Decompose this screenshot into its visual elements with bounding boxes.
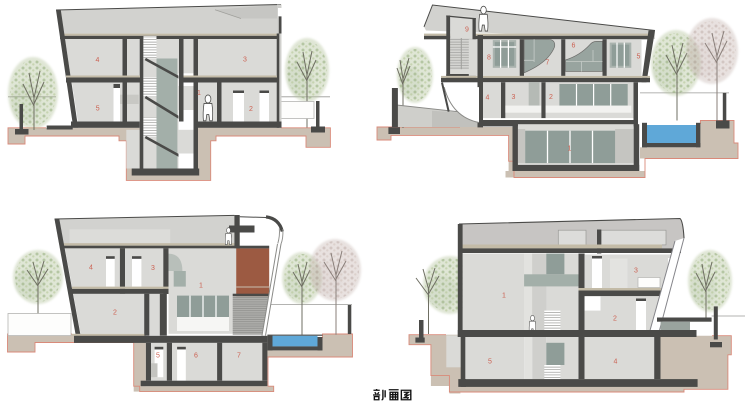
svg-text:1: 1 [199, 283, 203, 290]
svg-text:2: 2 [549, 94, 553, 101]
svg-text:7: 7 [237, 353, 241, 360]
svg-text:7: 7 [546, 60, 550, 67]
svg-text:5: 5 [96, 106, 100, 113]
svg-text:6: 6 [572, 43, 576, 50]
svg-text:3: 3 [151, 265, 155, 272]
svg-text:2: 2 [113, 310, 117, 317]
svg-text:1: 1 [568, 146, 572, 153]
svg-text:3: 3 [512, 94, 516, 101]
svg-text:4: 4 [96, 57, 100, 64]
svg-text:3: 3 [634, 268, 638, 275]
svg-text:4: 4 [614, 359, 618, 366]
svg-text:5: 5 [488, 359, 492, 366]
svg-text:5: 5 [156, 353, 160, 360]
svg-text:9: 9 [465, 27, 469, 34]
svg-text:2: 2 [249, 106, 253, 113]
svg-text:4: 4 [89, 265, 93, 272]
svg-text:2: 2 [613, 316, 617, 323]
svg-text:6: 6 [194, 353, 198, 360]
svg-text:5: 5 [637, 54, 641, 61]
svg-text:1: 1 [502, 293, 506, 300]
svg-text:1: 1 [197, 90, 201, 97]
svg-text:8: 8 [487, 55, 491, 62]
svg-text:3: 3 [243, 57, 247, 64]
svg-text:4: 4 [486, 95, 490, 102]
